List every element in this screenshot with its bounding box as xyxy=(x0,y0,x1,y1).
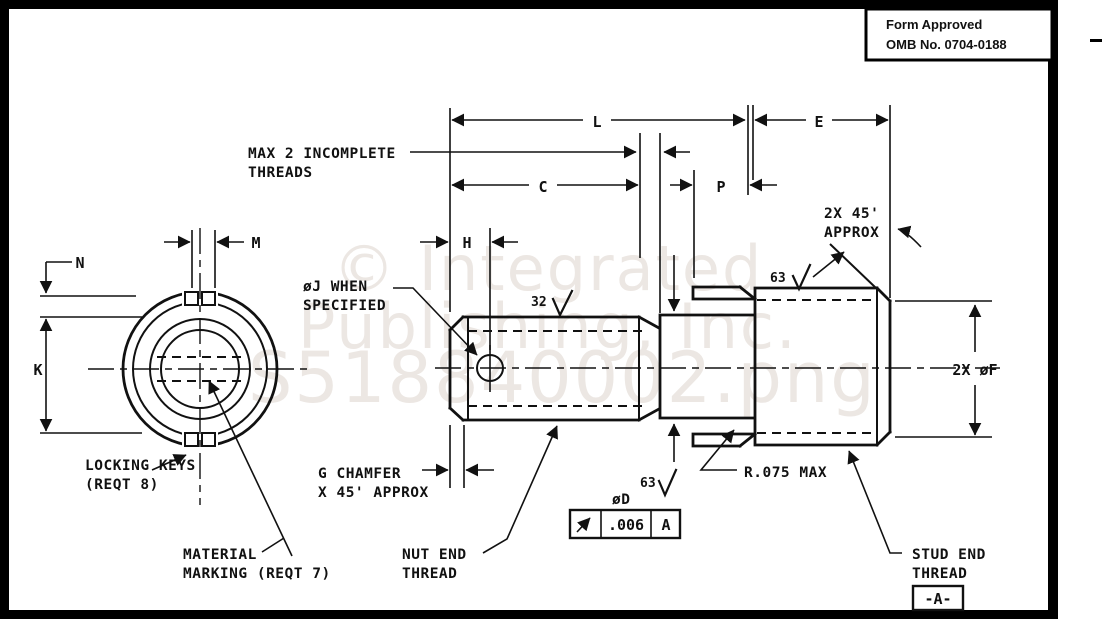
g-chamfer-label2: X 45' APPROX xyxy=(318,485,429,501)
dimension-K: K xyxy=(33,319,142,433)
locking-keys-label: LOCKING KEYS xyxy=(85,458,196,474)
dim-P-label: P xyxy=(716,178,725,196)
stud-drawing-svg: © Integrated Publishing, Inc. S518840002… xyxy=(0,0,1102,619)
engineering-drawing-page: © Integrated Publishing, Inc. S518840002… xyxy=(0,0,1102,619)
stud-end-leader xyxy=(849,451,902,553)
dimension-L: L xyxy=(452,109,745,131)
title-block: Form Approved OMB No. 0704-0188 xyxy=(866,9,1052,60)
nut-end-leader xyxy=(483,426,557,553)
nut-end-label2: THREAD xyxy=(402,566,457,582)
material-marking-tick xyxy=(262,538,284,552)
chamfer-2x-label2: APPROX xyxy=(824,225,879,241)
dim-K-label: K xyxy=(33,361,42,379)
margin-tick xyxy=(1090,39,1102,42)
dim-phi-d-label: øD xyxy=(612,492,630,508)
dim-E-label: E xyxy=(814,113,823,131)
g-chamfer-label: G CHAMFER xyxy=(318,466,401,482)
radius-leader xyxy=(701,430,737,470)
dimension-E: E xyxy=(755,109,888,131)
note-stud-end-thread: STUD END THREAD -A- xyxy=(849,451,986,610)
note-max-threads: MAX 2 INCOMPLETE THREADS xyxy=(248,146,690,181)
dim-C-label: C xyxy=(538,178,547,196)
dimension-P: P xyxy=(670,178,777,196)
finish-63-stud-check xyxy=(793,265,810,289)
radius-max-label: R.075 MAX xyxy=(744,465,827,481)
dim-H-label: H xyxy=(462,234,471,252)
material-marking-label2: MARKING (REQT 7) xyxy=(183,566,331,582)
phi-j-label: øJ WHEN xyxy=(303,279,368,295)
locking-keys-label2: (REQT 8) xyxy=(85,477,159,493)
dim-M-label: M xyxy=(251,234,260,252)
datum-a-label: -A- xyxy=(924,590,951,608)
chamfer-2x-label: 2X 45' xyxy=(824,206,879,222)
dim-phi-f-label: 2X øF xyxy=(952,361,997,379)
fcf-tolerance: .006 xyxy=(608,516,644,534)
feature-control-frame: .006 A xyxy=(570,510,680,538)
max-threads-label: MAX 2 INCOMPLETE xyxy=(248,146,396,162)
fcf-datum: A xyxy=(661,516,670,534)
key-tab-bottom xyxy=(693,434,755,446)
material-marking-label: MATERIAL xyxy=(183,547,257,563)
note-radius-max: R.075 MAX xyxy=(701,430,827,481)
dimension-N: N xyxy=(40,254,142,317)
finish-63-stud-label: 63 xyxy=(770,271,786,286)
note-nut-end-thread: NUT END THREAD xyxy=(402,426,557,582)
finish-63-neck-label: 63 xyxy=(640,476,656,491)
note-2x45-chamfer: 2X 45' APPROX xyxy=(813,206,921,288)
dimension-M: M xyxy=(164,230,261,288)
dimension-phi-f: 2X øF xyxy=(952,305,997,435)
stud-end-label2: THREAD xyxy=(912,566,967,582)
phi-j-label2: SPECIFIED xyxy=(303,298,386,314)
form-approved-text: Form Approved xyxy=(886,17,982,32)
note-locking-keys: LOCKING KEYS (REQT 8) xyxy=(85,455,196,493)
finish-63-neck-check xyxy=(659,470,676,495)
note-g-chamfer: G CHAMFER X 45' APPROX xyxy=(318,466,494,501)
watermark: © Integrated Publishing, Inc. S518840002… xyxy=(248,232,877,419)
dimension-C: C xyxy=(452,174,638,196)
finish-32-label: 32 xyxy=(531,295,547,310)
nut-end-label: NUT END xyxy=(402,547,467,563)
dim-N-label: N xyxy=(75,254,84,272)
finish-63-stud: 63 xyxy=(770,265,810,289)
stud-end-label: STUD END xyxy=(912,547,986,563)
max-threads-label2: THREADS xyxy=(248,165,313,181)
dim-L-label: L xyxy=(592,113,601,131)
omb-number-text: OMB No. 0704-0188 xyxy=(886,37,1007,52)
